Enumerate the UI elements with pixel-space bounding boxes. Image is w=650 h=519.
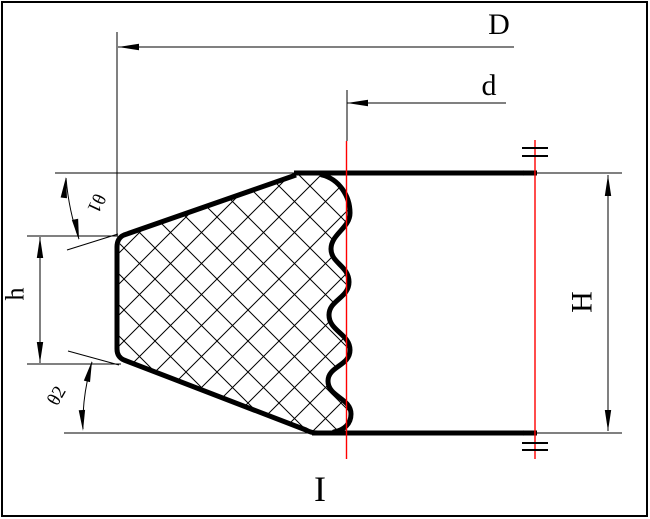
dimension-H: H xyxy=(566,175,612,431)
arrowhead-down-icon xyxy=(79,410,86,431)
label-theta1: θ1 xyxy=(83,190,110,216)
label-theta2: θ2 xyxy=(43,383,70,410)
section-label: I xyxy=(314,469,326,509)
dimension-d: d xyxy=(347,69,506,141)
arrowhead-down-icon xyxy=(605,410,611,431)
seal-profile xyxy=(117,175,351,433)
dimension-theta2: θ2 xyxy=(43,351,119,431)
label-d: d xyxy=(482,69,497,102)
surface-line-top xyxy=(55,170,622,175)
dimension-h: h xyxy=(1,236,122,364)
surface-line-bottom xyxy=(64,430,622,435)
arrowhead-left-icon xyxy=(347,100,368,106)
technical-drawing-seal-cross-section: D d H h θ1 θ2 I xyxy=(0,0,650,519)
crosshatch-fill xyxy=(118,175,351,432)
arrowhead-up-icon xyxy=(605,175,611,196)
theta2-extension-line xyxy=(68,351,119,365)
label-D: D xyxy=(488,8,510,41)
arrowhead-down-icon xyxy=(72,219,82,241)
arrowhead-left-icon xyxy=(118,44,139,50)
label-h: h xyxy=(1,288,30,301)
label-H: H xyxy=(566,291,599,313)
arrowhead-up-icon xyxy=(37,237,43,258)
arrowhead-down-icon xyxy=(37,342,43,363)
dimension-theta1: θ1 xyxy=(61,177,118,250)
